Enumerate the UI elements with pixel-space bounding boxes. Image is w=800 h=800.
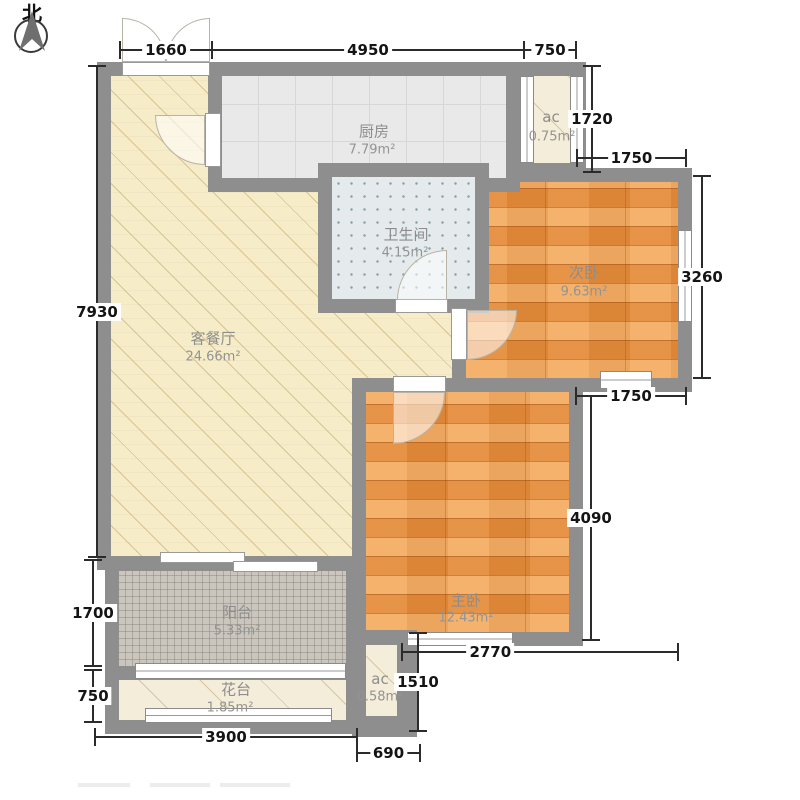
room-area-kitchen: 7.79m² bbox=[349, 143, 396, 158]
room-label-kitchen: 厨房 bbox=[359, 121, 389, 142]
room-area-ac-top: 0.75m² bbox=[529, 130, 576, 145]
balcony-slider-panel bbox=[233, 561, 318, 572]
bedroom1-door-leaf bbox=[393, 376, 446, 392]
watermark-dash bbox=[78, 783, 130, 787]
room-label-bedroom1: 主卧 bbox=[451, 590, 481, 611]
room-area-bedroom2: 9.63m² bbox=[561, 285, 608, 300]
room-area-bathroom: 4.15m² bbox=[382, 246, 429, 261]
room-area-flowerbed: 1.85m² bbox=[207, 701, 254, 716]
room-area-bedroom1: 12.43m² bbox=[438, 611, 493, 626]
watermark-dash bbox=[220, 783, 290, 787]
bathroom-door-leaf bbox=[395, 299, 448, 313]
room-label-flowerbed: 花台 bbox=[221, 679, 251, 700]
bedroom2-door-leaf bbox=[451, 308, 467, 360]
window bbox=[135, 663, 346, 679]
window bbox=[520, 76, 534, 163]
room-label-bedroom2: 次卧 bbox=[569, 262, 599, 283]
room-label-bathroom: 卫生间 bbox=[383, 224, 428, 245]
room-area-living: 24.66m² bbox=[185, 350, 240, 365]
room-label-ac-top: ac bbox=[542, 108, 559, 126]
room-label-ac-bottom: ac bbox=[371, 670, 388, 688]
room-label-living: 客餐厅 bbox=[190, 328, 235, 349]
floorplan-canvas: 厨房 7.79m² ac 0.75m² 卫生间 4.15m² 次卧 9.63m²… bbox=[0, 0, 800, 800]
room-area-balcony: 5.33m² bbox=[214, 624, 261, 639]
room-area-ac-bottom: 0.58m² bbox=[357, 690, 404, 705]
watermark-dash bbox=[150, 783, 210, 787]
room-label-balcony: 阳台 bbox=[222, 602, 252, 623]
kitchen-door-leaf bbox=[205, 113, 221, 167]
entry-door-opening bbox=[122, 62, 210, 76]
